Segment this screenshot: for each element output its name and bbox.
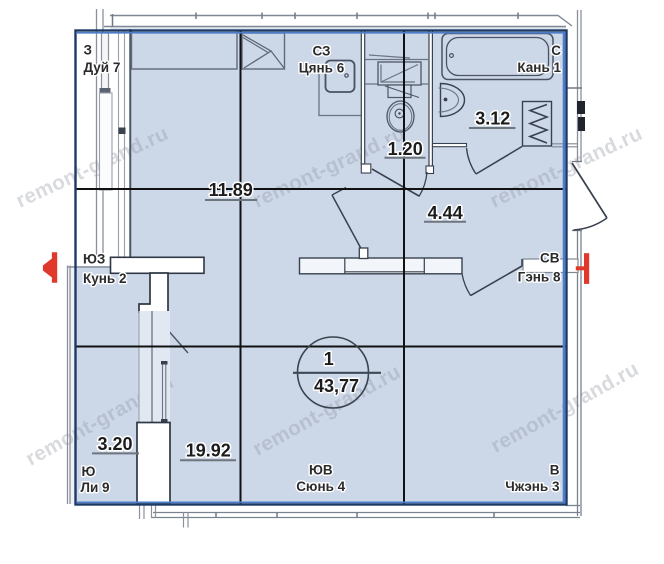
svg-text:С: С <box>551 43 561 58</box>
svg-text:1.20: 1.20 <box>388 139 423 159</box>
svg-text:В: В <box>550 462 560 477</box>
svg-text:Ю: Ю <box>82 464 96 479</box>
svg-text:1: 1 <box>324 349 334 369</box>
svg-text:Гэнь 8: Гэнь 8 <box>518 270 561 285</box>
svg-text:Кунь 2: Кунь 2 <box>83 271 126 286</box>
svg-text:СВ: СВ <box>540 251 560 266</box>
svg-text:Цянь 6: Цянь 6 <box>299 60 345 75</box>
svg-text:Сюнь 4: Сюнь 4 <box>296 479 345 494</box>
svg-text:4.44: 4.44 <box>428 203 463 223</box>
svg-text:43,77: 43,77 <box>314 376 359 396</box>
svg-text:Кань 1: Кань 1 <box>517 60 561 75</box>
svg-text:Ли 9: Ли 9 <box>81 480 110 495</box>
svg-text:Чжэнь 3: Чжэнь 3 <box>505 479 560 494</box>
svg-text:11.89: 11.89 <box>209 180 253 200</box>
svg-text:19.92: 19.92 <box>186 441 231 461</box>
svg-text:3.20: 3.20 <box>97 434 132 454</box>
svg-text:3.12: 3.12 <box>475 108 510 128</box>
svg-text:Дуй 7: Дуй 7 <box>84 60 121 75</box>
svg-text:ЮВ: ЮВ <box>309 462 333 477</box>
svg-text:З: З <box>84 43 92 58</box>
svg-text:ЮЗ: ЮЗ <box>83 252 105 267</box>
svg-text:СЗ: СЗ <box>312 44 330 59</box>
